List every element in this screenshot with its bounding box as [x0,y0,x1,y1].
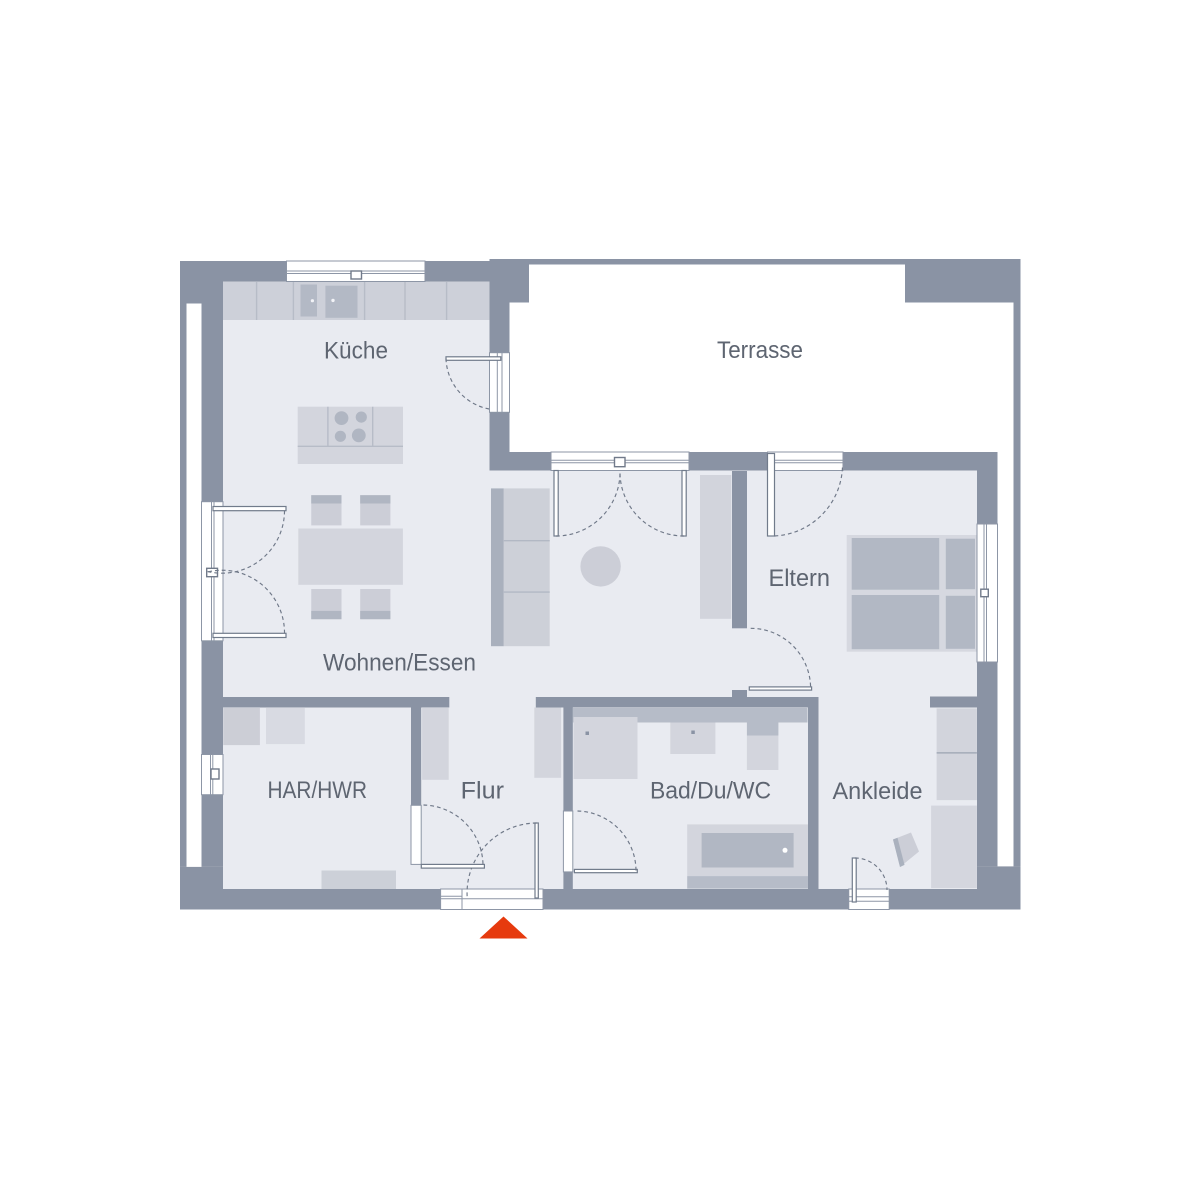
svg-text:Terrasse: Terrasse [717,337,803,364]
svg-text:Flur: Flur [461,778,504,805]
svg-text:Bad/Du/WC: Bad/Du/WC [650,778,771,805]
svg-text:Wohnen/Essen: Wohnen/Essen [323,650,476,677]
svg-text:Küche: Küche [324,337,388,364]
svg-text:Eltern: Eltern [769,565,831,592]
svg-text:HAR/HWR: HAR/HWR [268,777,368,804]
svg-text:Ankleide: Ankleide [833,778,923,805]
